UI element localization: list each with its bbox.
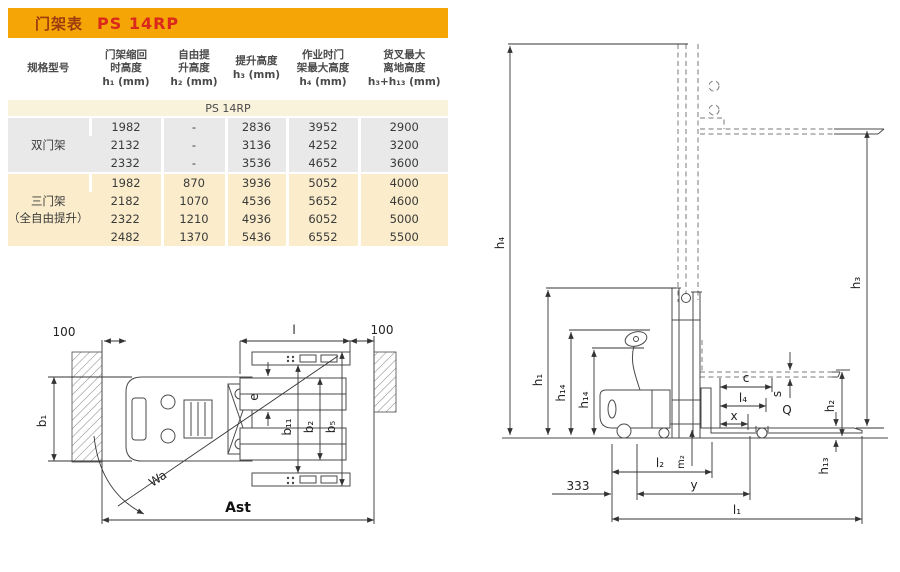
dimension-diagrams: 100 l 100 b₁ e b₁₁ b₂ b₅ Wa Ast xyxy=(0,0,900,572)
straddle-legs-top-view xyxy=(252,352,350,486)
dim-label-wa: Wa xyxy=(146,468,169,490)
dim-label-l1: l₁ xyxy=(733,503,741,517)
spec-sheet-page: 门架表 PS 14RP 规格型号 门架缩回 时高度 h₁ (mm) 自由提 升高… xyxy=(0,0,900,572)
drive-wheel xyxy=(617,424,631,438)
dim-label-c: c xyxy=(743,371,750,385)
dim-label-clearance-left: 100 xyxy=(53,325,76,339)
extended-mast-dashed xyxy=(678,44,884,302)
dim-label-q: Q xyxy=(782,403,791,417)
caster-wheel xyxy=(659,428,669,438)
dim-label-fork-length: l xyxy=(292,323,295,337)
dim-label-m2: m₂ xyxy=(676,455,687,469)
top-view-diagram: 100 l 100 b₁ e b₁₁ b₂ b₅ Wa Ast xyxy=(35,323,396,524)
load-wheel xyxy=(757,428,767,438)
length-dimensions xyxy=(552,430,862,524)
free-lift-fork-dashed xyxy=(700,340,840,377)
dim-label-h14-lower: h₁₄ xyxy=(577,391,591,408)
dim-label-h2: h₂ xyxy=(823,400,837,413)
dim-label-l4: l₄ xyxy=(739,391,747,405)
dim-label-l2: l₂ xyxy=(656,456,664,470)
dim-label-b1: b₁ xyxy=(35,415,49,428)
mast-side-view xyxy=(670,288,702,438)
dim-label-e: e xyxy=(247,393,261,400)
right-wall-hatch xyxy=(374,336,396,416)
dim-label-b2: b₂ xyxy=(302,421,316,434)
tiller-head xyxy=(624,329,649,348)
dim-label-b11: b₁₁ xyxy=(280,418,294,435)
dim-label-y: y xyxy=(690,478,697,492)
dim-label-b5: b₅ xyxy=(324,421,338,434)
dim-label-h14-upper: h₁₄ xyxy=(554,384,568,401)
dim-label-clearance-right: 100 xyxy=(371,323,394,337)
dim-label-s: s xyxy=(770,391,784,397)
truck-body-side-view xyxy=(600,329,700,438)
dim-label-ast: Ast xyxy=(225,500,251,516)
side-view-diagram: h₄ h₁ h₁₄ h₁₄ h₃ h₂ h₁₃ c l₄ x s Q 333 l… xyxy=(493,44,888,524)
left-wall-hatch xyxy=(72,340,102,466)
dim-label-x: x xyxy=(730,409,737,423)
dim-label-h4: h₄ xyxy=(493,237,507,250)
tiller-arm xyxy=(632,346,640,390)
dim-label-h3: h₃ xyxy=(849,277,863,290)
dim-label-333: 333 xyxy=(567,479,590,493)
dim-label-h13: h₁₃ xyxy=(817,457,831,474)
dim-label-h1: h₁ xyxy=(531,374,545,387)
truck-body-top-view xyxy=(126,377,252,461)
